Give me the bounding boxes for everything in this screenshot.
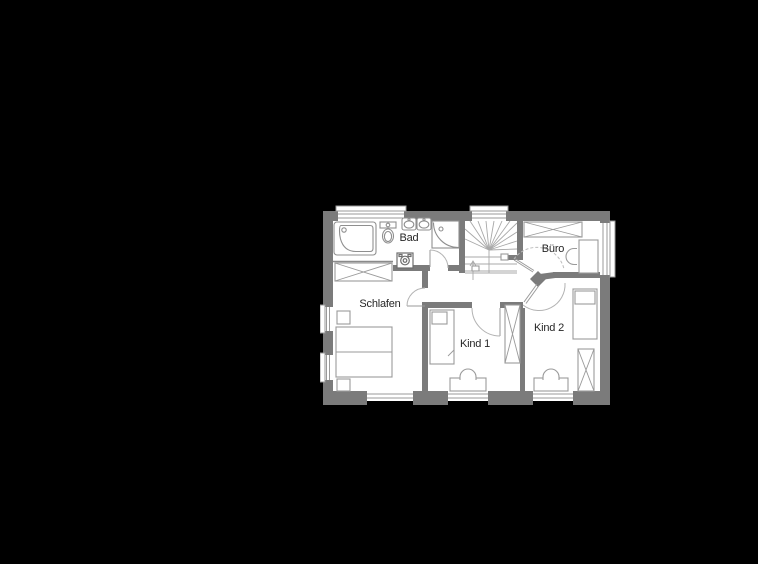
floor-plan: Bad Büro Schlafen Kind 1 Kind 2 bbox=[320, 203, 616, 415]
wardrobe-symbol bbox=[578, 349, 594, 391]
window-sill bbox=[336, 206, 406, 211]
wall-buttress bbox=[323, 401, 367, 405]
wardrobe-symbol bbox=[335, 263, 392, 281]
chair-symbol bbox=[543, 369, 559, 380]
double-bed-symbol bbox=[336, 327, 392, 377]
single-bed-symbol bbox=[573, 289, 597, 339]
chair-symbol bbox=[460, 369, 476, 380]
washing-machine-symbol bbox=[397, 253, 413, 268]
screen-background: Bad Büro Schlafen Kind 1 Kind 2 bbox=[0, 0, 758, 564]
room-label-kind2: Kind 2 bbox=[534, 322, 564, 334]
single-bed-symbol bbox=[430, 310, 454, 364]
room-label-schlafen: Schlafen bbox=[359, 298, 400, 310]
desk-symbol bbox=[579, 240, 598, 273]
nightstand-symbol bbox=[337, 379, 350, 391]
chair-symbol bbox=[566, 249, 577, 265]
nightstand-symbol bbox=[337, 311, 350, 324]
wardrobe-symbol bbox=[524, 222, 582, 237]
room-label-buero: Büro bbox=[542, 243, 565, 255]
corner-shower-symbol bbox=[432, 221, 459, 248]
double-washbasin-symbol bbox=[402, 218, 431, 230]
room-label-bad: Bad bbox=[400, 232, 419, 244]
room-label-kind1: Kind 1 bbox=[460, 338, 490, 350]
wardrobe-symbol bbox=[505, 305, 520, 363]
stair-tread-marker bbox=[472, 266, 479, 271]
stair-tread-marker bbox=[501, 254, 508, 260]
corner-bathtub-symbol bbox=[334, 222, 376, 255]
